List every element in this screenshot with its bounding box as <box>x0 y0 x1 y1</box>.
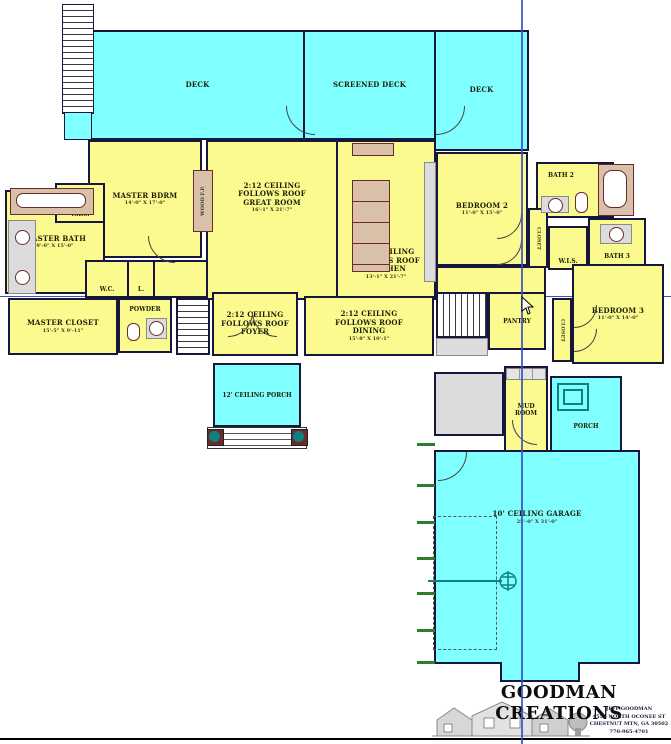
master-bedroom-dims: 14'-0" X 17'-0" <box>125 200 166 207</box>
bedroom3-dims: 11'-0" X 14'-0" <box>598 315 639 322</box>
kitchen-dims: 13'-1" X 21'-7" <box>366 274 407 281</box>
sheet-border-bottom <box>0 738 671 740</box>
powder-label: POWDER <box>129 306 160 313</box>
great-room: 2:12 CEILING FOLLOWS ROOF GREAT ROOM 16'… <box>206 140 338 300</box>
kitchen-wall-cabinets <box>424 162 436 282</box>
survey-tick <box>417 521 435 524</box>
master-sink-1 <box>15 230 30 245</box>
survey-tick <box>417 443 435 446</box>
bedroom3-label: BEDROOM 3 <box>592 307 644 316</box>
page-guide-line-vertical <box>521 0 523 744</box>
master-closet-dims: 15'-5" X 9'-11" <box>43 328 84 335</box>
logo-address-block: JEFF GOODMAN 4550 NORTH OCONEE ST CHESTN… <box>588 706 670 736</box>
powder-sink <box>149 321 164 336</box>
screened-deck: SCREENED DECK <box>303 30 436 140</box>
bath2-sink <box>548 198 563 213</box>
stair-landing-lower <box>436 338 488 356</box>
bedroom2-closet-label: CLOSET <box>535 227 542 250</box>
powder-toilet <box>127 323 140 341</box>
garage-future-area-dashed <box>433 516 497 650</box>
garage-label: 10' CEILING GARAGE <box>492 510 581 519</box>
logo-address-line-2: 4550 NORTH OCONEE ST <box>588 714 670 722</box>
rear-porch-label: PORCH <box>573 423 598 430</box>
water-closet: W.C. <box>85 260 129 298</box>
deck-left-label: DECK <box>186 81 210 90</box>
hall-left <box>153 260 208 298</box>
pantry: PANTRY <box>488 292 546 350</box>
survey-tick <box>417 661 435 664</box>
bedroom3-closet: CLOSET <box>552 298 572 362</box>
logo-address-line-4: 770-965-4701 <box>588 729 670 737</box>
mud-room-label-1: MUD <box>517 403 534 410</box>
mouse-cursor <box>521 296 535 316</box>
utility-line <box>428 580 502 582</box>
mud-room-label-2: ROOM <box>515 410 537 417</box>
survey-tick <box>417 629 435 632</box>
bath3-label: BATH 3 <box>604 253 630 260</box>
bath3-sink <box>609 227 624 242</box>
master-bedroom: MASTER BDRM 14'-0" X 17'-0" <box>88 140 202 258</box>
utility-meter-icon <box>498 570 518 592</box>
water-closet-label: W.C. <box>100 286 115 293</box>
bath2-tub-basin <box>603 170 627 208</box>
screened-deck-label: SCREENED DECK <box>333 81 406 90</box>
survey-tick <box>417 557 435 560</box>
door-arc <box>148 236 175 263</box>
basement-staircase <box>436 292 488 338</box>
bedroom2-label: BEDROOM 2 <box>456 202 508 211</box>
great-room-label: GREAT ROOM <box>243 199 301 208</box>
bedroom2-closet: CLOSET <box>528 208 548 268</box>
deck-right-label: DECK <box>470 86 494 95</box>
master-tub-basin <box>16 193 86 208</box>
bedroom3-closet-label: CLOSET <box>559 319 566 342</box>
porch-column-right <box>291 429 308 446</box>
hall-right <box>436 266 546 294</box>
master-bath-dims: 9'-0" X 15'-0" <box>36 243 73 250</box>
linen-closet-label: L. <box>138 286 144 293</box>
dining-room: 2:12 CEILING FOLLOWS ROOF DINING 15'-8" … <box>304 296 434 356</box>
deck-right: DECK <box>434 30 529 151</box>
floor-plan: DECK SCREENED DECK DECK MASTER BDRM 14'-… <box>0 0 671 744</box>
pantry-label: PANTRY <box>503 318 531 325</box>
front-porch: 12' CEILING PORCH <box>213 363 301 427</box>
great-room-dims: 16'-1" X 21'-7" <box>252 207 293 214</box>
bath2-label: BATH 2 <box>548 172 574 179</box>
mud-room-cubbies <box>506 368 546 380</box>
deck-left: DECK <box>90 30 305 140</box>
survey-tick <box>417 592 435 595</box>
porch-column-spiral-icon <box>556 382 590 412</box>
garage-entry-step <box>500 662 580 682</box>
master-closet: MASTER CLOSET 15'-5" X 9'-11" <box>8 298 118 355</box>
laundry-counters <box>434 372 504 436</box>
logo-address-line-1: JEFF GOODMAN <box>588 706 670 714</box>
logo-address-line-3: CHESTNUT MTN, GA 30502 <box>588 721 670 729</box>
dining-dims: 15'-8" X 10'-1" <box>349 336 390 343</box>
wood-fireplace-label: WOOD F.P. <box>200 186 207 216</box>
stair-landing <box>64 112 92 140</box>
master-sink-2 <box>15 270 30 285</box>
kitchen-island <box>352 180 390 272</box>
master-tub <box>10 188 94 215</box>
linen-closet: L. <box>127 260 155 298</box>
exterior-stairs <box>62 4 94 114</box>
master-closet-label: MASTER CLOSET <box>27 319 99 328</box>
bath2-tub <box>598 164 634 216</box>
bath2-toilet <box>575 192 588 213</box>
main-staircase <box>176 298 210 355</box>
front-porch-label: 12' CEILING PORCH <box>222 392 291 399</box>
wood-fireplace: WOOD F.P. <box>193 170 213 232</box>
porch-column-left <box>207 429 224 446</box>
dining-label: DINING <box>353 327 386 336</box>
survey-tick <box>417 484 435 487</box>
kitchen-sink-counter <box>352 143 394 156</box>
master-bedroom-label: MASTER BDRM <box>113 192 178 201</box>
